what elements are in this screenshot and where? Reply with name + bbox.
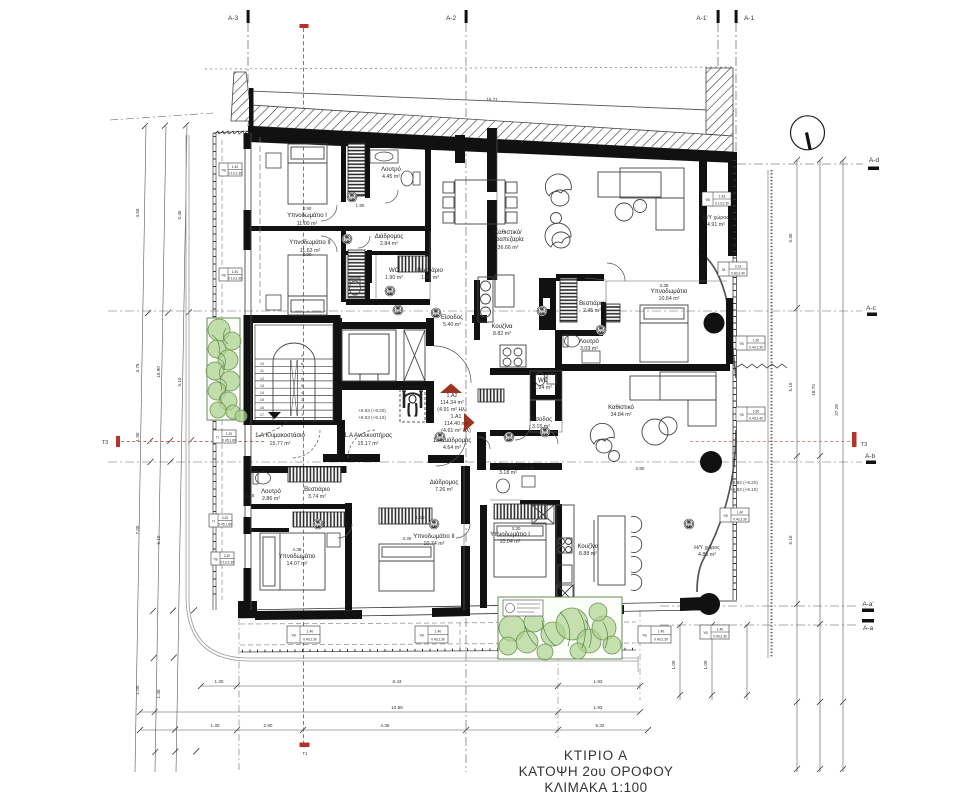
svg-text:1.40: 1.40	[737, 511, 744, 515]
svg-text:Θ2: Θ2	[507, 433, 511, 437]
svg-text:114.34 m²: 114.34 m²	[440, 400, 464, 406]
svg-text:1.Α Ανελκυστήρας: 1.Α Ανελκυστήρας	[344, 432, 392, 439]
svg-text:3.90: 3.90	[303, 252, 312, 257]
svg-text:4.64 m²: 4.64 m²	[443, 445, 461, 451]
svg-text:Θ1: Θ1	[540, 307, 544, 311]
svg-text:1.93: 1.93	[594, 679, 603, 684]
svg-text:0.80: 0.80	[598, 331, 604, 335]
svg-text:0.90: 0.90	[686, 525, 692, 529]
svg-text:0.45,1.80: 0.45,1.80	[218, 523, 232, 527]
svg-text:17: 17	[260, 413, 264, 417]
svg-text:Θ1: Θ1	[543, 428, 547, 432]
svg-text:ΚΑΤΟΨΗ 2ου ΟΡΟΦΟΥ: ΚΑΤΟΨΗ 2ου ΟΡΟΦΟΥ	[519, 764, 674, 779]
svg-text:1.40: 1.40	[232, 270, 239, 274]
svg-text:11.00 m²: 11.00 m²	[297, 221, 318, 227]
svg-text:1.20: 1.20	[226, 432, 233, 436]
svg-text:1.90: 1.90	[356, 203, 365, 208]
svg-text:0.40,2.30: 0.40,2.30	[654, 638, 668, 642]
svg-text:0.40,2.30: 0.40,2.30	[303, 638, 317, 642]
svg-text:10: 10	[260, 362, 264, 366]
svg-text:37.28: 37.28	[834, 404, 839, 416]
svg-text:0.10,2.30: 0.10,2.30	[228, 172, 242, 176]
svg-text:3.03 m²: 3.03 m²	[580, 346, 598, 352]
svg-text:Α-1': Α-1'	[696, 15, 707, 22]
svg-text:1.94 m²: 1.94 m²	[534, 385, 552, 391]
svg-text:0.40,2.40: 0.40,2.40	[749, 417, 763, 421]
svg-text:4.85 m²: 4.85 m²	[698, 552, 716, 558]
svg-text:8.88 m²: 8.88 m²	[579, 551, 597, 557]
svg-text:WC: WC	[538, 378, 549, 384]
svg-text:5.10: 5.10	[788, 382, 793, 391]
svg-text:Καθιστικό: Καθιστικό	[608, 404, 634, 411]
svg-text:3.30: 3.30	[403, 536, 412, 541]
svg-text:2.84 m²: 2.84 m²	[380, 241, 398, 247]
svg-text:Α-3: Α-3	[228, 15, 239, 22]
svg-text:3.20: 3.20	[222, 516, 229, 520]
svg-text:Κουζίνα: Κουζίνα	[492, 324, 514, 330]
svg-text:1.90 m²: 1.90 m²	[385, 275, 403, 281]
svg-text:+8.63 (+8.20): +8.63 (+8.20)	[358, 408, 386, 413]
svg-text:Βεστιάριο: Βεστιάριο	[579, 300, 605, 307]
svg-text:Διάδρομος: Διάδρομος	[375, 233, 404, 240]
svg-text:0.40,2.30: 0.40,2.30	[431, 638, 445, 642]
svg-text:9: 9	[301, 354, 303, 358]
svg-text:1.40: 1.40	[307, 630, 314, 634]
svg-text:3.18 m²: 3.18 m²	[499, 470, 517, 476]
svg-text:10.04 m²: 10.04 m²	[500, 539, 521, 545]
svg-text:1.00: 1.00	[703, 660, 708, 669]
svg-text:0.90: 0.90	[542, 433, 548, 437]
svg-text:Λουτρό: Λουτρό	[498, 462, 518, 469]
svg-text:+8.53 (+8.10): +8.53 (+8.10)	[730, 487, 758, 492]
svg-text:1.00: 1.00	[437, 438, 443, 442]
svg-text:Είσοδος: Είσοδος	[441, 315, 463, 321]
svg-text:7.26 m²: 7.26 m²	[435, 487, 453, 493]
svg-text:+8.63 (+8.20): +8.63 (+8.20)	[730, 480, 758, 485]
svg-text:Θ1: Θ1	[316, 520, 320, 524]
svg-text:Τ1: Τ1	[303, 751, 309, 756]
svg-text:Θ1: Θ1	[687, 520, 691, 524]
svg-text:15: 15	[260, 398, 264, 402]
svg-text:2: 2	[301, 406, 303, 410]
svg-text:10.74 m²: 10.74 m²	[424, 541, 445, 547]
svg-text:1.Α Κλιμακοστάσιο: 1.Α Κλιμακοστάσιο	[255, 432, 305, 439]
svg-text:2.90: 2.90	[264, 723, 273, 728]
svg-text:Κουζίνα: Κουζίνα	[578, 544, 600, 550]
svg-text:114.40 m²: 114.40 m²	[444, 421, 468, 427]
svg-text:1.40: 1.40	[416, 515, 425, 520]
svg-text:Α-c: Α-c	[866, 305, 877, 312]
svg-text:Υπνοδωμάτιο: Υπνοδωμάτιο	[279, 553, 316, 560]
svg-text:8: 8	[301, 362, 303, 366]
svg-text:Λουτρό: Λουτρό	[579, 338, 599, 345]
svg-text:Α-a': Α-a'	[862, 601, 873, 608]
svg-text:WC: WC	[389, 268, 400, 274]
svg-text:8.82 m²: 8.82 m²	[493, 331, 511, 337]
svg-text:4.38: 4.38	[293, 547, 302, 552]
svg-text:5.10: 5.10	[177, 377, 182, 386]
svg-text:11: 11	[260, 369, 264, 373]
svg-text:3.75: 3.75	[135, 363, 140, 372]
svg-text:Υπνοδωμάτιο Ι: Υπνοδωμάτιο Ι	[490, 531, 530, 538]
svg-text:1.Α2: 1.Α2	[447, 393, 458, 399]
svg-text:Θ1: Θ1	[434, 309, 438, 313]
svg-text:Καθιστικό/: Καθιστικό/	[494, 229, 522, 236]
svg-text:Θ1: Θ1	[432, 520, 436, 524]
svg-text:5.32: 5.32	[596, 723, 605, 728]
svg-text:0.90: 0.90	[431, 525, 437, 529]
svg-text:1: 1	[301, 413, 303, 417]
svg-text:12: 12	[260, 377, 264, 381]
svg-text:Τραπεζαρία: Τραπεζαρία	[492, 237, 524, 243]
svg-text:1.75: 1.75	[526, 466, 535, 471]
svg-text:0.10,2.30: 0.10,2.30	[715, 202, 729, 206]
svg-text:Τ3: Τ3	[861, 442, 867, 448]
svg-text:3.90: 3.90	[303, 206, 312, 211]
svg-text:1.Α1: 1.Α1	[451, 414, 462, 420]
svg-text:1.93: 1.93	[594, 705, 603, 710]
svg-text:0.10,2.30: 0.10,2.30	[228, 277, 242, 281]
svg-text:0.45: 0.45	[177, 210, 182, 219]
svg-text:1.00: 1.00	[506, 438, 512, 442]
svg-text:1.00: 1.00	[349, 198, 355, 202]
svg-text:5.10: 5.10	[156, 535, 161, 544]
svg-text:5.30: 5.30	[788, 233, 793, 242]
svg-text:1.30: 1.30	[211, 723, 220, 728]
svg-text:Λουτρό: Λουτρό	[381, 166, 401, 173]
svg-text:0.80: 0.80	[433, 314, 439, 318]
svg-text:4.50: 4.50	[135, 208, 140, 217]
svg-text:(4.91 m² Ηλ): (4.91 m² Ηλ)	[437, 407, 467, 413]
svg-text:2.20: 2.20	[224, 554, 231, 558]
svg-text:4.35: 4.35	[381, 723, 390, 728]
svg-text:0.90: 0.90	[315, 525, 321, 529]
svg-text:ΚΤΙΡΙΟ Α: ΚΤΙΡΙΟ Α	[564, 748, 628, 763]
svg-text:Α-2: Α-2	[446, 15, 457, 22]
svg-text:0.80,2.40: 0.80,2.40	[731, 272, 745, 276]
svg-text:1.43: 1.43	[719, 195, 726, 199]
svg-text:4.91 m²: 4.91 m²	[707, 222, 725, 228]
svg-text:Λουτρό: Λουτρό	[261, 488, 281, 495]
svg-text:Θ1: Θ1	[388, 287, 392, 291]
svg-text:1.30: 1.30	[753, 339, 760, 343]
svg-text:5.10: 5.10	[788, 535, 793, 544]
svg-text:Α-d: Α-d	[869, 157, 880, 164]
svg-text:Η/Υ χώρος: Η/Υ χώρος	[694, 544, 720, 551]
svg-text:36.66 m²: 36.66 m²	[498, 245, 519, 251]
svg-text:1.00: 1.00	[135, 685, 140, 694]
svg-text:0.80: 0.80	[387, 292, 393, 296]
svg-text:+8.53 (+8.10): +8.53 (+8.10)	[358, 415, 386, 420]
svg-text:7: 7	[301, 369, 303, 373]
svg-text:Υπνοδωμάτιο ΙΙ: Υπνοδωμάτιο ΙΙ	[289, 239, 331, 246]
svg-text:Θ2: Θ2	[396, 306, 400, 310]
svg-text:13: 13	[260, 384, 264, 388]
svg-text:Η/Υ χώρος: Η/Υ χώρος	[703, 214, 729, 221]
svg-text:3.13: 3.13	[735, 265, 742, 269]
svg-text:1.40: 1.40	[435, 630, 442, 634]
svg-text:1.40: 1.40	[156, 689, 161, 698]
svg-text:10.88: 10.88	[391, 705, 403, 710]
svg-text:14.07 m²: 14.07 m²	[287, 561, 308, 567]
svg-text:Υπνοδωμάτιο Ι: Υπνοδωμάτιο Ι	[287, 212, 327, 219]
svg-text:0.80: 0.80	[539, 312, 545, 316]
svg-text:3.30: 3.30	[512, 526, 521, 531]
svg-text:Τ3: Τ3	[102, 440, 108, 446]
svg-text:1.96 m²: 1.96 m²	[421, 275, 439, 281]
svg-text:ΚΛΙΜΑΚΑ 1:100: ΚΛΙΜΑΚΑ 1:100	[544, 780, 647, 795]
svg-text:1.40: 1.40	[717, 628, 724, 632]
svg-text:1.00: 1.00	[671, 660, 676, 669]
svg-text:0.40,2.30: 0.40,2.30	[733, 518, 747, 522]
svg-text:16: 16	[260, 406, 264, 410]
svg-text:0.40,2.30: 0.40,2.30	[713, 635, 727, 639]
svg-text:10.90: 10.90	[156, 366, 161, 378]
svg-text:1.30: 1.30	[215, 679, 224, 684]
svg-text:Βεστιάριο: Βεστιάριο	[304, 486, 330, 493]
svg-text:34.84 m²: 34.84 m²	[611, 412, 632, 418]
svg-text:10.64 m²: 10.64 m²	[659, 296, 680, 302]
svg-text:Α-b: Α-b	[865, 453, 876, 460]
svg-text:2.86 m²: 2.86 m²	[262, 496, 280, 502]
svg-text:Α-a: Α-a	[863, 625, 874, 632]
svg-text:Υπνοδωμάτιο: Υπνοδωμάτιο	[651, 288, 688, 295]
svg-text:1.45: 1.45	[246, 493, 255, 498]
svg-text:4.45 m²: 4.45 m²	[382, 174, 400, 180]
svg-text:14: 14	[260, 391, 264, 395]
svg-text:Α-1: Α-1	[744, 15, 755, 22]
svg-text:5.40 m²: 5.40 m²	[443, 322, 461, 328]
svg-text:Θ2: Θ2	[438, 433, 442, 437]
svg-text:5: 5	[301, 384, 303, 388]
svg-text:0.45,1.80: 0.45,1.80	[222, 439, 236, 443]
svg-text:1.40: 1.40	[232, 165, 239, 169]
svg-text:8.43: 8.43	[393, 679, 402, 684]
svg-text:Θ1: Θ1	[599, 326, 603, 330]
svg-text:Θ1: Θ1	[345, 235, 349, 239]
svg-text:6: 6	[301, 377, 303, 381]
svg-text:2.80: 2.80	[636, 466, 645, 471]
svg-text:Θ1: Θ1	[350, 193, 354, 197]
svg-text:15.77 m²: 15.77 m²	[270, 441, 291, 447]
svg-text:Είσοδος: Είσοδος	[530, 417, 552, 423]
svg-text:(4.61 m² Ηλ): (4.61 m² Ηλ)	[441, 428, 471, 434]
svg-text:3.38: 3.38	[660, 283, 669, 288]
svg-text:2.45 m²: 2.45 m²	[583, 308, 601, 314]
svg-text:3: 3	[301, 398, 303, 402]
svg-text:1.40: 1.40	[658, 630, 665, 634]
svg-text:Βεστιάριο: Βεστιάριο	[417, 267, 443, 274]
svg-text:18.70: 18.70	[811, 384, 816, 396]
svg-text:15.17 m²: 15.17 m²	[358, 441, 379, 447]
svg-text:Υπνοδωμάτιο ΙΙ: Υπνοδωμάτιο ΙΙ	[413, 533, 455, 540]
svg-text:0.10,2.30: 0.10,2.30	[220, 561, 234, 565]
svg-text:1.00: 1.00	[344, 240, 350, 244]
svg-text:0.40,2.30: 0.40,2.30	[749, 346, 763, 350]
svg-text:Διάδρομος: Διάδρομος	[430, 479, 459, 486]
svg-text:4: 4	[301, 391, 303, 395]
svg-text:1.00: 1.00	[395, 311, 401, 315]
svg-text:7.05: 7.05	[135, 525, 140, 534]
svg-text:1.90: 1.90	[135, 432, 140, 441]
svg-text:3.30: 3.30	[753, 410, 760, 414]
svg-text:3.74 m²: 3.74 m²	[308, 494, 326, 500]
